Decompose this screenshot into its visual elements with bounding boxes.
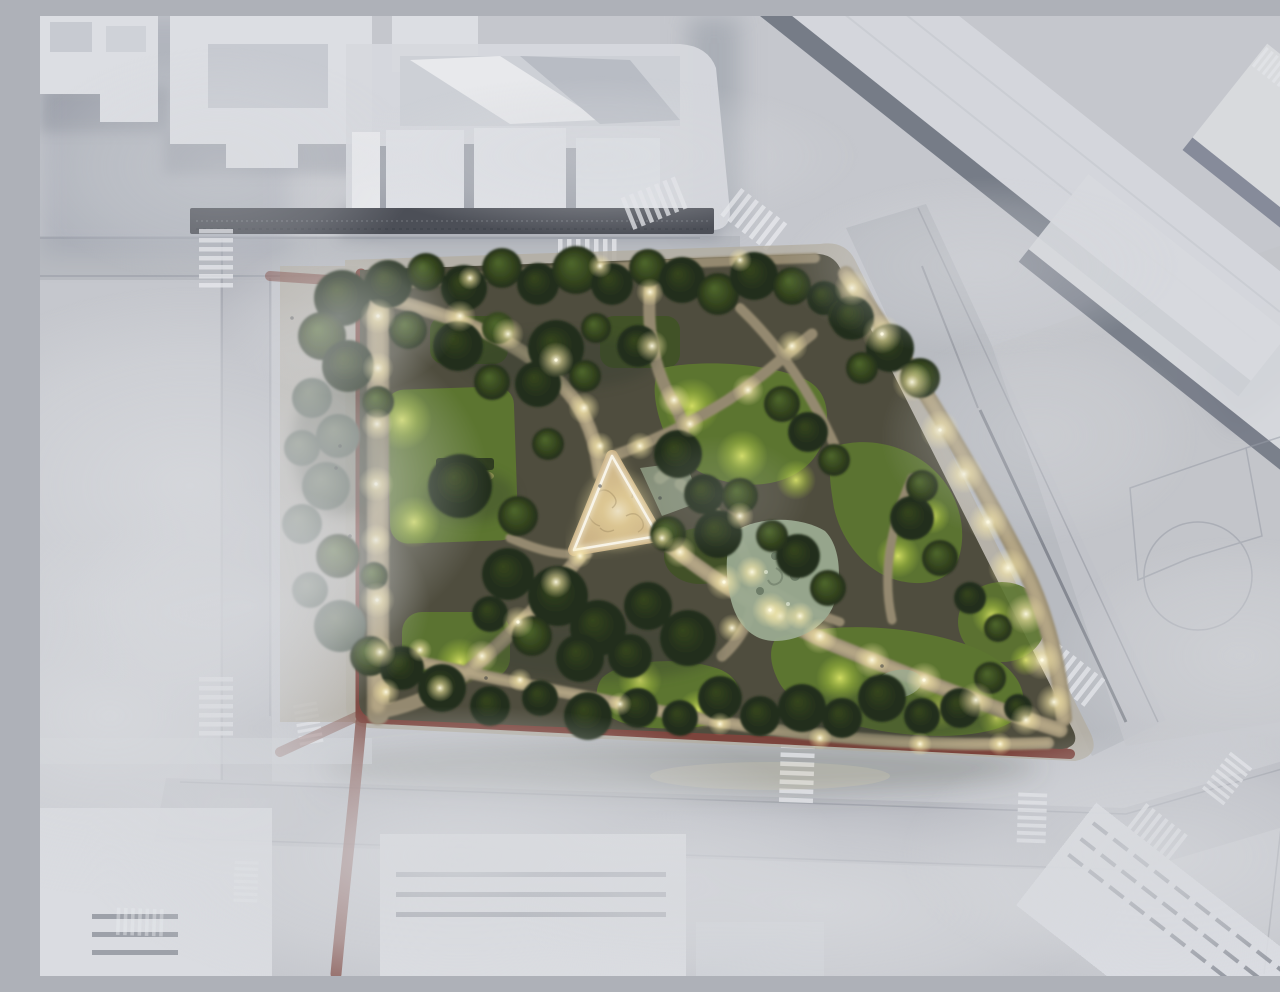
rendering-canvas xyxy=(40,16,1280,976)
aerial-park-rendering: Top-down bird's-eye architectural visual… xyxy=(40,16,1280,976)
